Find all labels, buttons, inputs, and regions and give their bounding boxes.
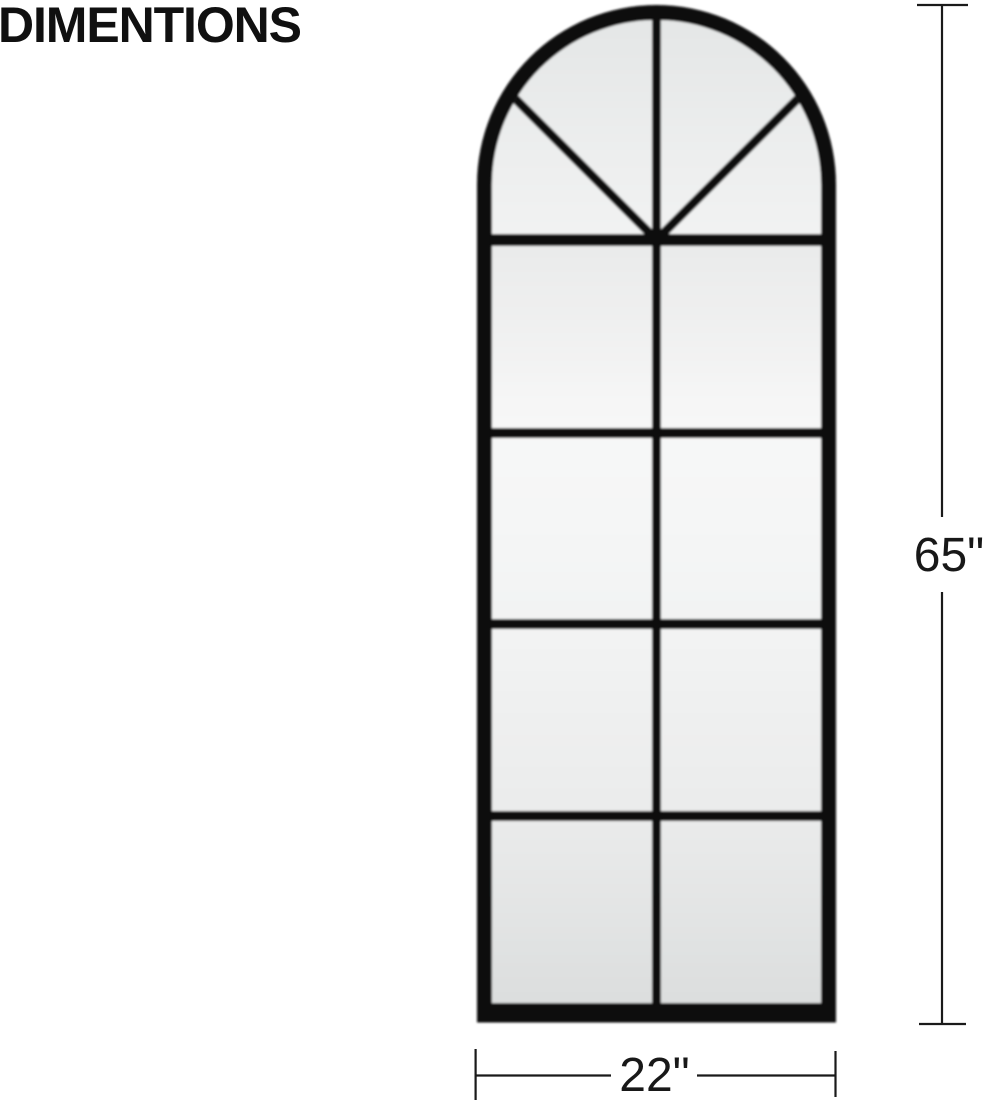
svg-text:DIMENTIONS: DIMENTIONS (0, 0, 301, 53)
svg-text:65": 65" (914, 529, 984, 582)
svg-text:22": 22" (619, 1049, 689, 1102)
